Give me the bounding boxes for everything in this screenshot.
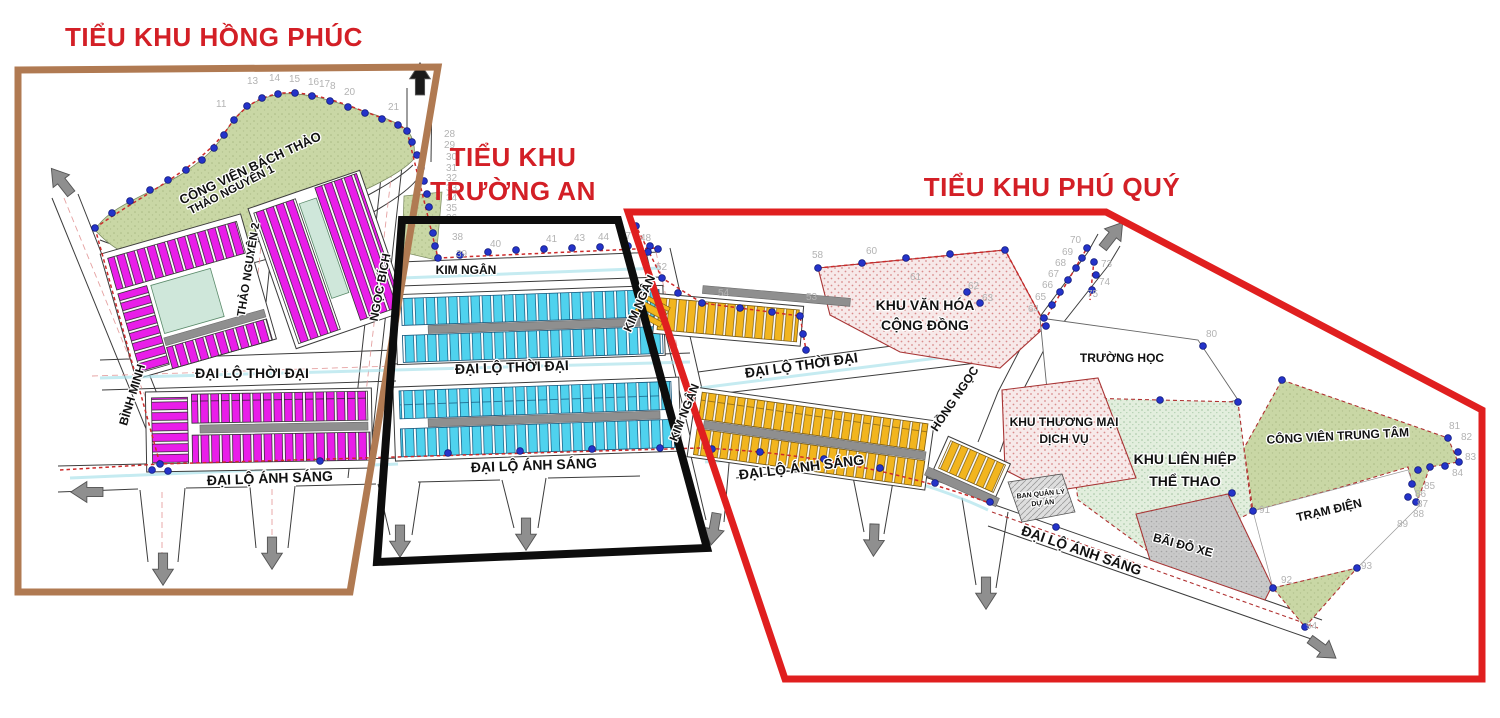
survey-point-label: 83 [1465, 452, 1477, 463]
survey-dot [404, 128, 411, 135]
survey-dot [797, 313, 804, 320]
road-direction-arrow-icon [71, 482, 103, 503]
survey-dot [430, 230, 437, 237]
label-khu-van-hoa-1: KHU VĂN HÓA [876, 296, 975, 313]
survey-dot [231, 117, 238, 124]
survey-dot [317, 458, 324, 465]
survey-point-label: 11 [216, 99, 227, 110]
survey-dot [395, 122, 402, 129]
survey-point-label: 89 [1397, 519, 1409, 530]
survey-dot [1049, 302, 1056, 309]
survey-dot [1445, 435, 1452, 442]
survey-point-label: 28 [444, 129, 456, 140]
survey-dot [932, 480, 939, 487]
survey-dot [1279, 377, 1286, 384]
survey-point-label: 91 [1259, 505, 1271, 516]
survey-point-label: 81 [1449, 421, 1461, 432]
label-binh-minh: BÌNH MINH [115, 362, 148, 427]
survey-dot [659, 275, 666, 282]
survey-dot [1235, 399, 1242, 406]
survey-dot [379, 116, 386, 123]
survey-dot [211, 145, 218, 152]
survey-point-label: 62 [968, 281, 980, 292]
survey-point-label: 60 [866, 246, 878, 257]
survey-dot [541, 246, 548, 253]
survey-dot [362, 110, 369, 117]
block-w3 [924, 434, 1014, 507]
survey-dot [1065, 277, 1072, 284]
survey-point-label: 17 [319, 79, 331, 90]
survey-point-label: 63 [982, 293, 994, 304]
survey-point-label: 84 [1452, 468, 1464, 479]
survey-dot [1354, 565, 1361, 572]
road-direction-arrow-icon [390, 525, 411, 557]
survey-dot [435, 255, 442, 262]
site-plan-map: 1113141516178202128293031323334353638394… [0, 0, 1500, 718]
survey-dot [769, 309, 776, 316]
road-direction-arrow-icon [516, 518, 537, 550]
survey-dot [1057, 289, 1064, 296]
survey-dot [221, 132, 228, 139]
survey-dot [165, 468, 172, 475]
survey-point-label: 43 [574, 233, 586, 244]
survey-dot [259, 95, 266, 102]
survey-dot [513, 247, 520, 254]
survey-dot [517, 448, 524, 455]
label-thoi-dai-hp: ĐẠI LỘ THỜI ĐẠI [195, 364, 309, 381]
label-kim-ngan-h: KIM NGÂN [436, 262, 497, 277]
survey-dot [147, 187, 154, 194]
label-lien-hiep-1: KHU LIÊN HIỆP [1134, 450, 1237, 467]
block-h3 [145, 388, 372, 472]
survey-point-label: 82 [1461, 432, 1473, 443]
survey-point-label: 73 [1101, 259, 1113, 270]
survey-point-label: 58 [812, 250, 824, 261]
survey-dot [903, 255, 910, 262]
survey-point-label: 61 [910, 272, 922, 283]
label-lien-hiep-2: THỂ THAO [1149, 472, 1221, 489]
survey-dot [183, 167, 190, 174]
survey-dot [1079, 255, 1086, 262]
survey-dot [1084, 245, 1091, 252]
survey-point-label: 66 [1042, 280, 1054, 291]
survey-dot [327, 98, 334, 105]
survey-point-label: 8 [330, 81, 336, 92]
survey-point-label: 13 [247, 76, 259, 87]
survey-dot [445, 450, 452, 457]
survey-dot [699, 300, 706, 307]
survey-point-label: 93 [1361, 561, 1373, 572]
survey-point-label: 38 [452, 232, 464, 243]
survey-dot [309, 93, 316, 100]
survey-dot [877, 465, 884, 472]
survey-point-label: 69 [1062, 247, 1074, 258]
survey-dot [275, 91, 282, 98]
survey-dot [1270, 585, 1277, 592]
survey-dot [127, 198, 134, 205]
survey-dot [1427, 464, 1434, 471]
survey-dot [800, 331, 807, 338]
label-hong-ngoc: HỒNG NGỌC [927, 363, 982, 434]
survey-dot [655, 246, 662, 253]
label-khu-van-hoa-2: CỘNG ĐỒNG [881, 316, 969, 333]
survey-dot [737, 305, 744, 312]
survey-dot [859, 260, 866, 267]
survey-dot [1250, 508, 1257, 515]
road-direction-arrow-icon [153, 553, 174, 585]
survey-dot [1053, 524, 1060, 531]
survey-dot [815, 265, 822, 272]
survey-dot [657, 445, 664, 452]
survey-dot [803, 347, 810, 354]
survey-dot [432, 243, 439, 250]
survey-dot [569, 245, 576, 252]
survey-point-label: 21 [388, 102, 400, 113]
survey-dot [409, 139, 416, 146]
survey-dot [1200, 343, 1207, 350]
survey-dot [292, 90, 299, 97]
survey-dot [757, 449, 764, 456]
survey-dot [199, 157, 206, 164]
zone-title-phu-quy: TIỂU KHU PHÚ QUÝ [924, 172, 1180, 202]
survey-point-label: 70 [1070, 235, 1082, 246]
label-truong-hoc: TRƯỜNG HỌC [1080, 350, 1165, 365]
survey-point-label: 15 [289, 74, 301, 85]
survey-point-label: 75 [1087, 289, 1099, 300]
survey-dot [1041, 315, 1048, 322]
survey-dot [109, 210, 116, 217]
survey-point-label: 44 [598, 232, 610, 243]
survey-dot [165, 177, 172, 184]
survey-dot [157, 461, 164, 468]
road-direction-arrow-icon [43, 162, 79, 200]
road-direction-arrow-icon [863, 524, 885, 557]
survey-point-label: 20 [344, 87, 356, 98]
zone-title-hong-phuc: TIỂU KHU HỒNG PHÚC [65, 22, 363, 52]
survey-dot [1442, 463, 1449, 470]
survey-point-label: 67 [1048, 269, 1060, 280]
survey-dot [1229, 490, 1236, 497]
survey-point-label: 41 [546, 234, 558, 245]
survey-dot [1415, 467, 1422, 474]
zone-title-truong-an-line1: TIỂU KHU [450, 142, 577, 172]
survey-dot [1409, 481, 1416, 488]
survey-dot [675, 290, 682, 297]
map-canvas: 1113141516178202128293031323334353638394… [0, 0, 1500, 718]
survey-dot [1073, 265, 1080, 272]
survey-point-label: 16 [308, 77, 320, 88]
zone-title-truong-an-line2: TRƯỜNG AN [430, 176, 596, 206]
survey-dot [1091, 259, 1098, 266]
survey-dot [1405, 494, 1412, 501]
road-direction-arrow-icon [976, 577, 997, 609]
survey-dot [987, 499, 994, 506]
label-thuong-mai-2: DỊCH VỤ [1039, 432, 1088, 446]
survey-dot [597, 244, 604, 251]
survey-dot [149, 467, 156, 474]
survey-dot [244, 103, 251, 110]
survey-point-label: 94 [1306, 621, 1318, 632]
survey-point-label: 64 [1028, 304, 1040, 315]
label-thuong-mai-1: KHU THƯƠNG MẠI [1010, 415, 1119, 429]
survey-dot [1456, 459, 1463, 466]
survey-point-label: 74 [1099, 277, 1111, 288]
survey-dot [1002, 247, 1009, 254]
survey-dot [1157, 397, 1164, 404]
block-t2 [393, 377, 681, 461]
survey-point-label: 88 [1413, 509, 1425, 520]
survey-dot [92, 225, 99, 232]
road-direction-arrow-icon [262, 537, 283, 569]
survey-point-label: 40 [490, 239, 502, 250]
survey-point-label: 65 [1035, 292, 1047, 303]
survey-dot [589, 446, 596, 453]
survey-point-label: 54 [718, 288, 730, 299]
survey-point-label: 53 [806, 292, 818, 303]
survey-point-label: 39 [456, 249, 468, 260]
survey-point-label: 68 [1055, 258, 1067, 269]
road-direction-arrow-icon [1304, 631, 1342, 667]
survey-dot [1043, 323, 1050, 330]
survey-dot [1455, 449, 1462, 456]
survey-point-label: 80 [1206, 329, 1218, 340]
survey-point-label: 14 [269, 73, 281, 84]
survey-point-label: 52 [656, 262, 668, 273]
survey-point-label: 92 [1281, 575, 1293, 586]
survey-dot [947, 251, 954, 258]
block-w1 [653, 282, 851, 351]
survey-dot [345, 104, 352, 111]
